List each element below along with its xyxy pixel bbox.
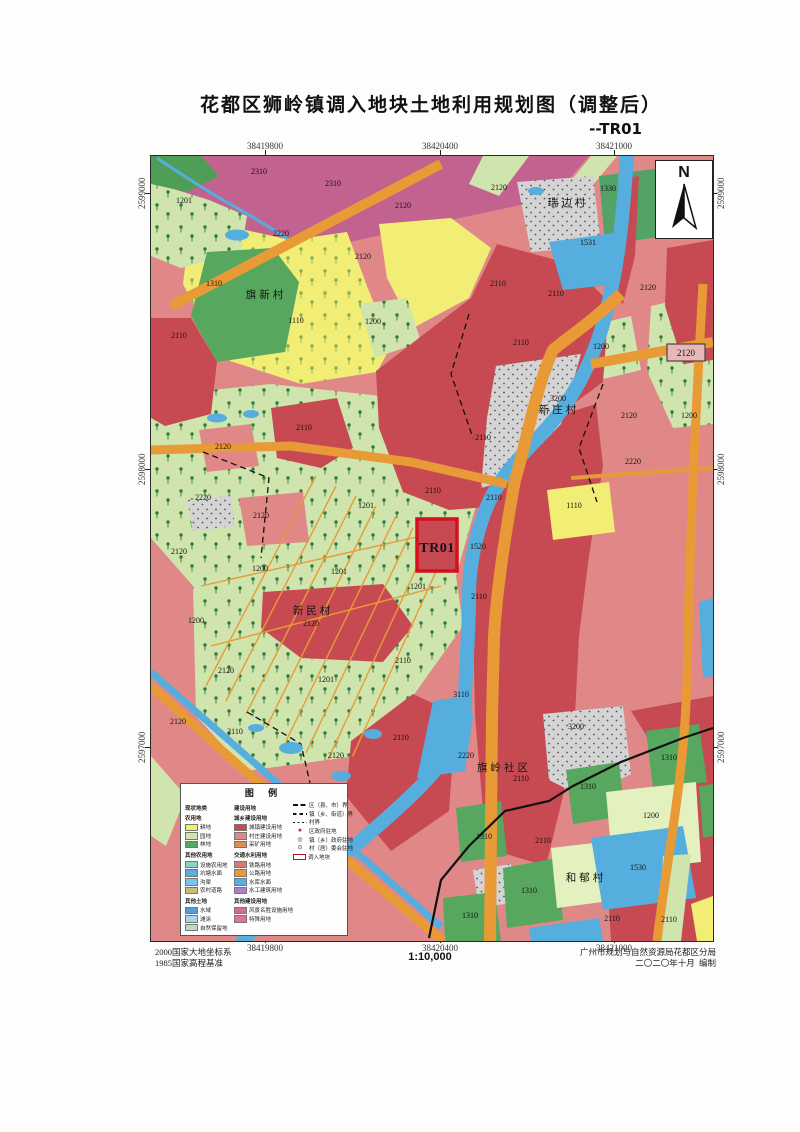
agency-name: 广州市规划与自然资源局花都区分局 (520, 947, 716, 958)
legend-item: 耕地 (185, 823, 234, 832)
legend-item-label: 村界 (309, 818, 320, 826)
legend-item-label: 镇（乡）政府驻地 (309, 836, 353, 844)
map-code-label: 1110 (288, 316, 303, 325)
map-code-label: 2110 (296, 423, 312, 432)
page-title: 花都区狮岭镇调入地块土地利用规划图（调整后） (150, 90, 712, 117)
map-code-label: 1110 (566, 501, 581, 510)
map-code-label: 1520 (470, 542, 486, 551)
legend-swatch (185, 869, 198, 877)
legend-item-label: 设施农用地 (200, 861, 228, 869)
legend-swatch (185, 915, 198, 923)
legend-swatch (234, 915, 247, 923)
map-code-label: 1201 (358, 501, 374, 510)
legend-swatch (234, 907, 247, 915)
legend-item: 水工建筑用地 (234, 886, 293, 895)
plot-id-subtitle: --TR01 (150, 120, 642, 138)
map-code-label: 1310 (462, 911, 478, 920)
legend-swatch (185, 824, 198, 832)
legend-item: 园地 (185, 832, 234, 841)
legend-item-label: 沟渠 (200, 878, 211, 886)
datum-note: 2000国家大地坐标系 1985国家高程基准 (155, 947, 232, 969)
legend-item-label: 镇（乡、街道）界 (309, 810, 353, 818)
legend-item-label: 区（县、市）界 (309, 801, 348, 809)
legend-item: 村界 (293, 818, 353, 827)
legend-item: ⊙村（居）委会驻地 (293, 844, 353, 853)
map-code-label: 2110 (548, 289, 564, 298)
map-code-label: 2120 (215, 442, 231, 451)
map-village-label: 旗岭社区 (477, 761, 531, 774)
tr01-label: TR01 (419, 541, 454, 556)
map-code-label: 2220 (625, 457, 641, 466)
legend-item-label: 滩涂 (200, 915, 211, 923)
map-code-label: 2120 (170, 717, 186, 726)
legend-group-header: 其他建设用地 (234, 897, 293, 905)
legend-item-label: 风景名胜设施用地 (249, 906, 293, 914)
legend-item: 调入地块 (293, 853, 353, 862)
map-code-label: 2110 (395, 656, 411, 665)
legend-swatch (234, 887, 247, 895)
map-village-label: 瑞边村 (548, 196, 589, 209)
map-code-label: 1200 (593, 342, 609, 351)
map-code-label: 1201 (318, 675, 334, 684)
legend-item-label: 采矿用地 (249, 840, 271, 848)
legend-group-header: 交通水利用地 (234, 851, 293, 859)
legend-item-label: 耕地 (200, 823, 211, 831)
map-code-label: 3110 (453, 690, 469, 699)
legend-item-label: 特殊用地 (249, 915, 271, 923)
legend-item: 坑塘水面 (185, 869, 234, 878)
map-code-label: 2120 (303, 619, 319, 628)
legend-group-header: 农用地 (185, 814, 234, 822)
map-code-label: 2120 (640, 283, 656, 292)
legend-marker-symbol: ⊙ (293, 845, 307, 851)
legend-item-label: 城镇建设用地 (249, 823, 282, 831)
legend-group-header: 建设用地 (234, 804, 293, 812)
legend-item: 沟渠 (185, 877, 234, 886)
legend-swatch (234, 869, 247, 877)
legend-group-header: 现状地类 (185, 804, 234, 812)
map-code-label: 1310 (580, 782, 596, 791)
legend-item-label: 公路用地 (249, 869, 271, 877)
legend-marker-symbol: ★ (293, 828, 307, 834)
legend-item-label: 水库水面 (249, 878, 271, 886)
datum-line2: 1985国家高程基准 (155, 958, 232, 969)
legend-panel: 图 例 现状地类农用地耕地园地林地其他农用地设施农用地坑塘水面沟渠农村道路其他土… (180, 783, 348, 936)
legend-item: 铁路用地 (234, 860, 293, 869)
legend-item: 特殊用地 (234, 915, 293, 924)
legend-swatch (185, 861, 198, 869)
legend-item-label: 林地 (200, 840, 211, 848)
legend-group-header: 其他农用地 (185, 851, 234, 859)
map-code-label: 2220 (458, 751, 474, 760)
legend-parcel-outline (293, 854, 306, 861)
map-code-label: 2220 (195, 493, 211, 502)
legend-swatch (185, 832, 198, 840)
map-code-label: 2120 (621, 411, 637, 420)
map-code-label: 2110 (171, 331, 187, 340)
legend-swatch (185, 841, 198, 849)
map-code-label: 2110 (604, 914, 620, 923)
legend-item: 农村道路 (185, 886, 234, 895)
map-code-label: 2310 (251, 167, 267, 176)
map-code-label: 1200 (188, 616, 204, 625)
map-code-label: 2110 (486, 493, 502, 502)
legend-item: 设施农用地 (185, 860, 234, 869)
map-code-label: 2120 (355, 252, 371, 261)
grid-coordinate-right: 2599000 (716, 163, 726, 223)
map-village-label: 旗新村 (246, 288, 287, 301)
scanned-plan-page: 花都区狮岭镇调入地块土地利用规划图（调整后） --TR01 3841980038… (0, 0, 800, 1132)
legend-swatch (234, 832, 247, 840)
map-code-label: 2120 (491, 183, 507, 192)
grid-coordinate-right: 2597000 (716, 717, 726, 777)
legend-swatch (185, 924, 198, 932)
legend-column-boundaries: 区（县、市）界镇（乡、街道）界村界★区政府驻地◎镇（乡）政府驻地⊙村（居）委会驻… (293, 801, 353, 932)
north-label: N (656, 164, 712, 182)
map-code-label: 2110 (475, 433, 491, 442)
legend-item: 区（县、市）界 (293, 801, 353, 810)
boxed-code-label: 2120 (667, 344, 705, 361)
legend-item: 水域 (185, 906, 234, 915)
credit-label: 编制 (699, 958, 716, 968)
legend-item: 镇（乡、街道）界 (293, 810, 353, 819)
map-code-label: 1310 (521, 886, 537, 895)
map-code-label: 1201 (410, 582, 426, 591)
legend-item: 水库水面 (234, 877, 293, 886)
legend-item-label: 自然保留地 (200, 924, 228, 932)
map-code-label: 2110 (393, 733, 409, 742)
map-code-label: 1200 (365, 317, 381, 326)
map-code-label: 2310 (325, 179, 341, 188)
legend-column-construction: 建设用地城乡建设用地城镇建设用地村庄建设用地采矿用地交通水利用地铁路用地公路用地… (234, 801, 293, 932)
legend-item-label: 调入地块 (308, 853, 330, 861)
map-code-label: 2120 (395, 201, 411, 210)
map-code-label: 1200 (643, 811, 659, 820)
legend-marker-symbol: ◎ (293, 837, 307, 843)
map-code-label: 1310 (206, 279, 222, 288)
datum-line1: 2000国家大地坐标系 (155, 947, 232, 958)
legend-item: 城镇建设用地 (234, 823, 293, 832)
map-code-label: 2220 (273, 229, 289, 238)
map-code-label: 2110 (227, 727, 243, 736)
legend-line-symbol (293, 822, 307, 823)
map-code-label: 1330 (600, 184, 616, 193)
legend-swatch (185, 887, 198, 895)
north-arrow: N (655, 160, 713, 239)
legend-item-label: 水工建筑用地 (249, 886, 282, 894)
legend-item: 公路用地 (234, 869, 293, 878)
legend-item-label: 水域 (200, 906, 211, 914)
legend-swatch (234, 878, 247, 886)
map-code-label: 1310 (476, 832, 492, 841)
legend-swatch (234, 824, 247, 832)
map-code-label: 1201 (331, 567, 347, 576)
legend-line-symbol (293, 813, 307, 815)
legend-swatch (234, 861, 247, 869)
legend-item: ◎镇（乡）政府驻地 (293, 835, 353, 844)
map-code-label: 2110 (513, 338, 529, 347)
map-code-label: 2110 (425, 486, 441, 495)
north-arrow-icon (664, 182, 704, 232)
map-village-label: 新庄村 (539, 403, 580, 416)
grid-coordinate-bottom: 38419800 (229, 943, 301, 953)
legend-group-header: 城乡建设用地 (234, 814, 293, 822)
legend-item-label: 村庄建设用地 (249, 832, 282, 840)
legend-swatch (234, 841, 247, 849)
legend-column-agricultural: 现状地类农用地耕地园地林地其他农用地设施农用地坑塘水面沟渠农村道路其他土地水域滩… (185, 801, 234, 932)
map-code-label: 1531 (580, 238, 596, 247)
legend-group-header: 其他土地 (185, 897, 234, 905)
legend-item-label: 铁路用地 (249, 861, 271, 869)
legend-title: 图 例 (185, 786, 343, 799)
legend-item-label: 坑塘水面 (200, 869, 222, 877)
map-code-label: 1201 (176, 196, 192, 205)
compile-date: 二〇二〇年十月 (635, 958, 695, 968)
legend-item: 风景名胜设施用地 (234, 906, 293, 915)
legend-item: 自然保留地 (185, 923, 234, 932)
svg-text:2120: 2120 (677, 348, 696, 358)
legend-item: 林地 (185, 840, 234, 849)
map-village-label: 新民村 (293, 604, 334, 617)
legend-item-label: 农村道路 (200, 886, 222, 894)
legend-item: 滩涂 (185, 915, 234, 924)
map-code-label: 1200 (681, 411, 697, 420)
legend-swatch (185, 907, 198, 915)
map-code-label: 3200 (568, 722, 584, 731)
map-code-label: 2120 (328, 751, 344, 760)
map-code-label: 1310 (661, 753, 677, 762)
map-code-label: 2110 (490, 279, 506, 288)
map-village-label: 和郁村 (566, 871, 607, 884)
map-code-label: 2110 (513, 774, 529, 783)
map-code-label: 2120 (218, 666, 234, 675)
map-code-label: 2110 (661, 915, 677, 924)
map-code-label: 2110 (471, 592, 487, 601)
legend-item: 村庄建设用地 (234, 832, 293, 841)
legend-item: 采矿用地 (234, 840, 293, 849)
map-code-label: 2120 (171, 547, 187, 556)
legend-item-label: 区政府驻地 (309, 827, 337, 835)
map-scale: 1:10,000 (350, 951, 510, 963)
map-code-label: 2110 (535, 836, 551, 845)
map-code-label: 2120 (253, 511, 269, 520)
map-code-label: 1200 (252, 564, 268, 573)
agency-note: 广州市规划与自然资源局花都区分局 二〇二〇年十月 编制 (520, 947, 716, 969)
map-code-label: 3200 (550, 394, 566, 403)
legend-line-symbol (293, 804, 307, 806)
map-code-label: 1530 (630, 863, 646, 872)
legend-item-label: 村（居）委会驻地 (309, 844, 353, 852)
legend-item: ★区政府驻地 (293, 827, 353, 836)
grid-coordinate-right: 2598000 (716, 439, 726, 499)
legend-swatch (185, 878, 198, 886)
legend-item-label: 园地 (200, 832, 211, 840)
